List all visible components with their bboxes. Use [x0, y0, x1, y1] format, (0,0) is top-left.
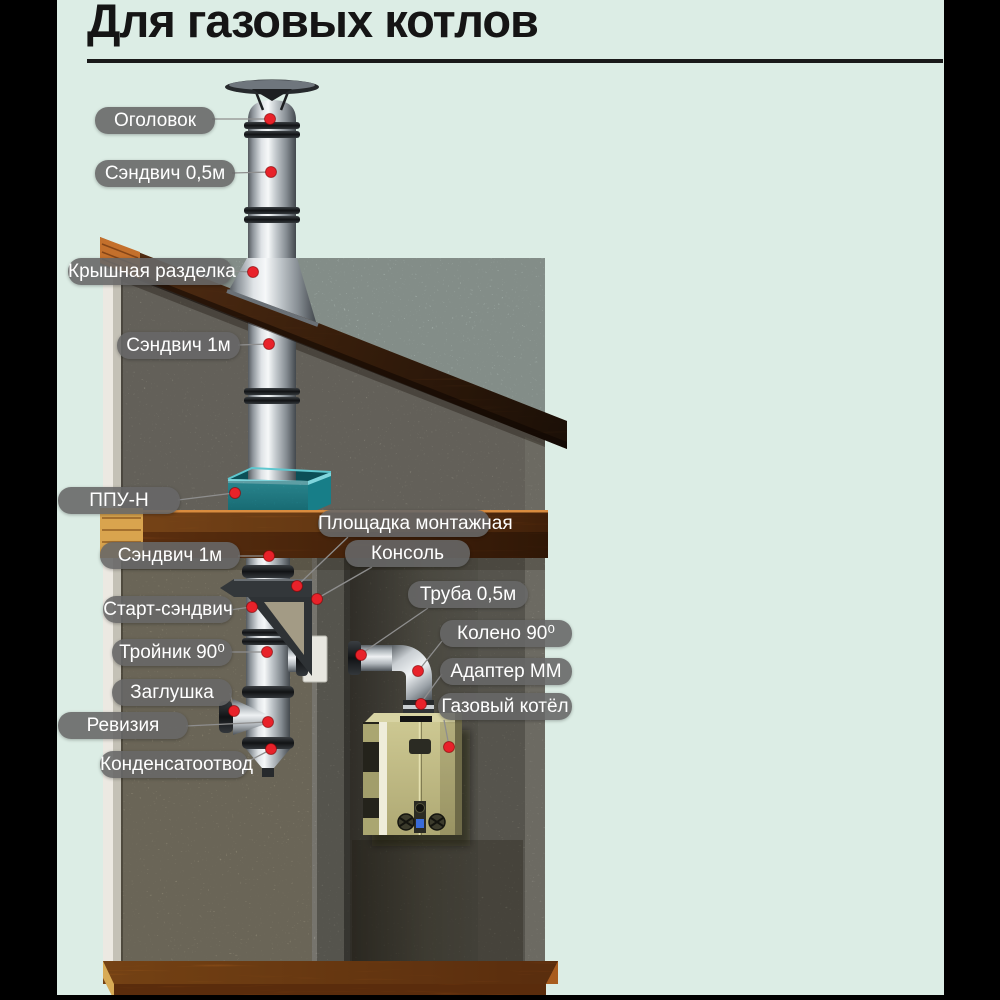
- callout-text: Труба 0,5м: [420, 584, 516, 605]
- callout-dot: [262, 647, 273, 658]
- callout-label-konsol: Консоль: [345, 540, 470, 567]
- callout-text: Сэндвич 1м: [118, 545, 223, 566]
- callout-text: ППУ-Н: [89, 490, 148, 511]
- callout-label-kryshnaya-razdelka: Крышная разделка: [68, 258, 232, 285]
- callout-dot: [264, 551, 275, 562]
- callout-dot: [444, 742, 455, 753]
- callout-dot: [264, 339, 275, 350]
- frame-bar-right: [944, 0, 1000, 1000]
- callout-text: Адаптер ММ: [450, 661, 561, 682]
- frame-bar-left: [0, 0, 57, 1000]
- frame-bar-bottom: [0, 995, 1000, 1000]
- callout-label-troynik-90: Тройник 90⁰: [112, 639, 232, 666]
- callout-dot: [248, 267, 259, 278]
- callout-text: Сэндвич 0,5м: [105, 163, 225, 184]
- callout-dot: [413, 666, 424, 677]
- poster: Для газовых котлов: [0, 0, 1000, 1000]
- callout-label-start-sandwich: Старт-сэндвич: [103, 596, 233, 623]
- callout-text: Заглушка: [130, 682, 214, 703]
- callout-label-gazovy-kotel: Газовый котёл: [438, 693, 572, 720]
- callout-dot: [266, 744, 277, 755]
- callout-text: Консоль: [371, 543, 444, 564]
- leader-lines: [178, 119, 449, 763]
- callout-label-ppu-n: ППУ-Н: [58, 487, 180, 514]
- callout-label-adapter-mm: Адаптер ММ: [440, 658, 572, 685]
- callout-label-reviziya: Ревизия: [58, 712, 188, 739]
- callout-dot: [266, 167, 277, 178]
- callout-label-ogolovok: Оголовок: [95, 107, 215, 134]
- callout-dot: [356, 650, 367, 661]
- callout-label-truba-05m: Труба 0,5м: [408, 581, 528, 608]
- callout-text: Газовый котёл: [441, 696, 568, 717]
- callout-text: Сэндвич 1м: [126, 335, 231, 356]
- callout-dot: [247, 602, 258, 613]
- callout-label-koleno-90: Колено 90⁰: [440, 620, 572, 647]
- callout-dot: [312, 594, 323, 605]
- callout-dots: [229, 114, 455, 755]
- callout-text: Ревизия: [87, 715, 160, 736]
- callout-text: Старт-сэндвич: [103, 599, 233, 620]
- callout-text: Колено 90⁰: [457, 623, 555, 644]
- callout-label-sandwich-05m: Сэндвич 0,5м: [95, 160, 235, 187]
- callout-dot: [265, 114, 276, 125]
- callout-text: Оголовок: [114, 110, 196, 131]
- callout-text: Тройник 90⁰: [119, 642, 225, 663]
- callout-label-sandwich-1m-2: Сэндвич 1м: [100, 542, 240, 569]
- callout-dot: [230, 488, 241, 499]
- callout-dot: [292, 581, 303, 592]
- callout-text: Площадка монтажная: [318, 513, 513, 534]
- callout-dot: [263, 717, 274, 728]
- callout-label-sandwich-1m: Сэндвич 1м: [117, 332, 240, 359]
- callout-text: Конденсатоотвод: [100, 754, 253, 775]
- callout-dot: [416, 699, 427, 710]
- callout-label-kondensatootvod: Конденсатоотвод: [100, 751, 248, 778]
- callout-label-zaglushka: Заглушка: [112, 679, 232, 706]
- callout-label-ploshadka: Площадка монтажная: [318, 510, 490, 537]
- callout-text: Крышная разделка: [68, 261, 236, 282]
- callout-dot: [229, 706, 240, 717]
